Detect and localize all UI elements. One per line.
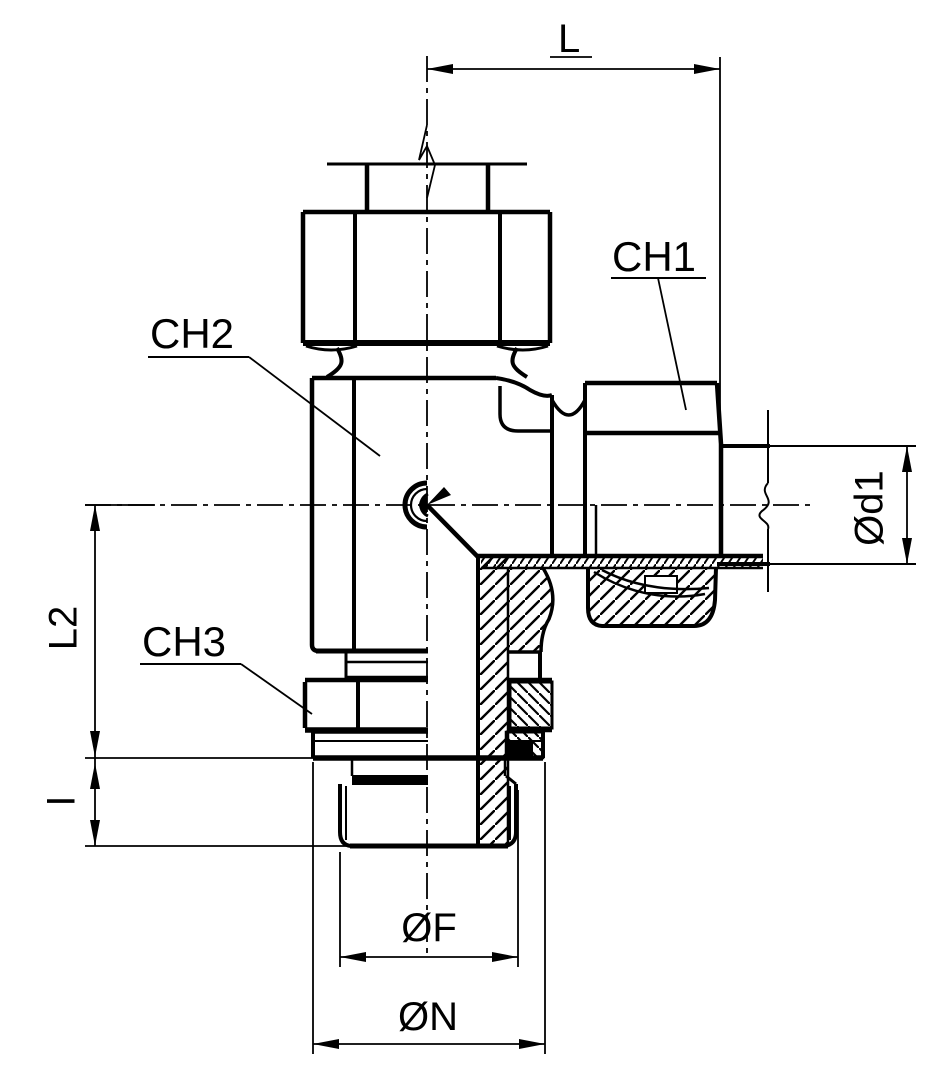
- arrowhead: [90, 505, 100, 531]
- neck-flare-left: [327, 348, 342, 377]
- callout-label-ch2: CH2: [150, 310, 234, 357]
- callout-ch2: CH2: [148, 310, 380, 456]
- arrowhead: [313, 1039, 339, 1049]
- thread-runout: [352, 775, 428, 785]
- technical-drawing-page: L Ød1 L2 I ØF ØN CH1: [0, 0, 948, 1084]
- branch-groove: [552, 400, 585, 415]
- locknut-ch3: [305, 652, 428, 730]
- leader-line: [249, 357, 380, 456]
- cut-boundary: [427, 505, 478, 557]
- neck-flare-right: [512, 348, 527, 377]
- arrowhead: [492, 952, 518, 962]
- tube-break-mark-right: [759, 483, 768, 529]
- dim-label-L: L: [558, 17, 580, 61]
- arrowhead: [90, 820, 100, 846]
- fitting-elbow-drawing: L Ød1 L2 I ØF ØN CH1: [0, 0, 948, 1084]
- dim-I: [85, 758, 350, 846]
- body-step-section: [508, 568, 553, 652]
- arrowhead: [340, 952, 366, 962]
- seal-ring: [506, 742, 533, 756]
- leader-line: [241, 664, 312, 714]
- callout-label-ch3: CH3: [142, 618, 226, 665]
- arrowhead: [902, 446, 912, 472]
- body-wall-section: [478, 557, 508, 846]
- arrowhead: [90, 763, 100, 789]
- callout-ch3: CH3: [140, 618, 312, 714]
- arrowhead: [902, 538, 912, 564]
- leader-line: [658, 278, 686, 410]
- locknut-section: [510, 682, 552, 728]
- arrowhead: [519, 1039, 545, 1049]
- branch-fillet: [500, 386, 552, 431]
- dim-label-F: ØF: [401, 906, 457, 950]
- dim-label-N: ØN: [398, 995, 458, 1039]
- dim-label-L2: L2: [42, 606, 86, 651]
- callout-label-ch1: CH1: [612, 233, 696, 280]
- cone-arrow: [427, 487, 451, 505]
- section-hatching: [478, 556, 763, 846]
- dim-label-d1: Ød1: [848, 470, 892, 546]
- dim-label-I: I: [40, 795, 84, 806]
- arrowhead: [427, 64, 453, 74]
- centerlines: [85, 56, 812, 958]
- dim-d1: [902, 446, 912, 564]
- section-outlines: [427, 505, 763, 846]
- arrowhead: [90, 731, 100, 757]
- arrowhead: [694, 64, 720, 74]
